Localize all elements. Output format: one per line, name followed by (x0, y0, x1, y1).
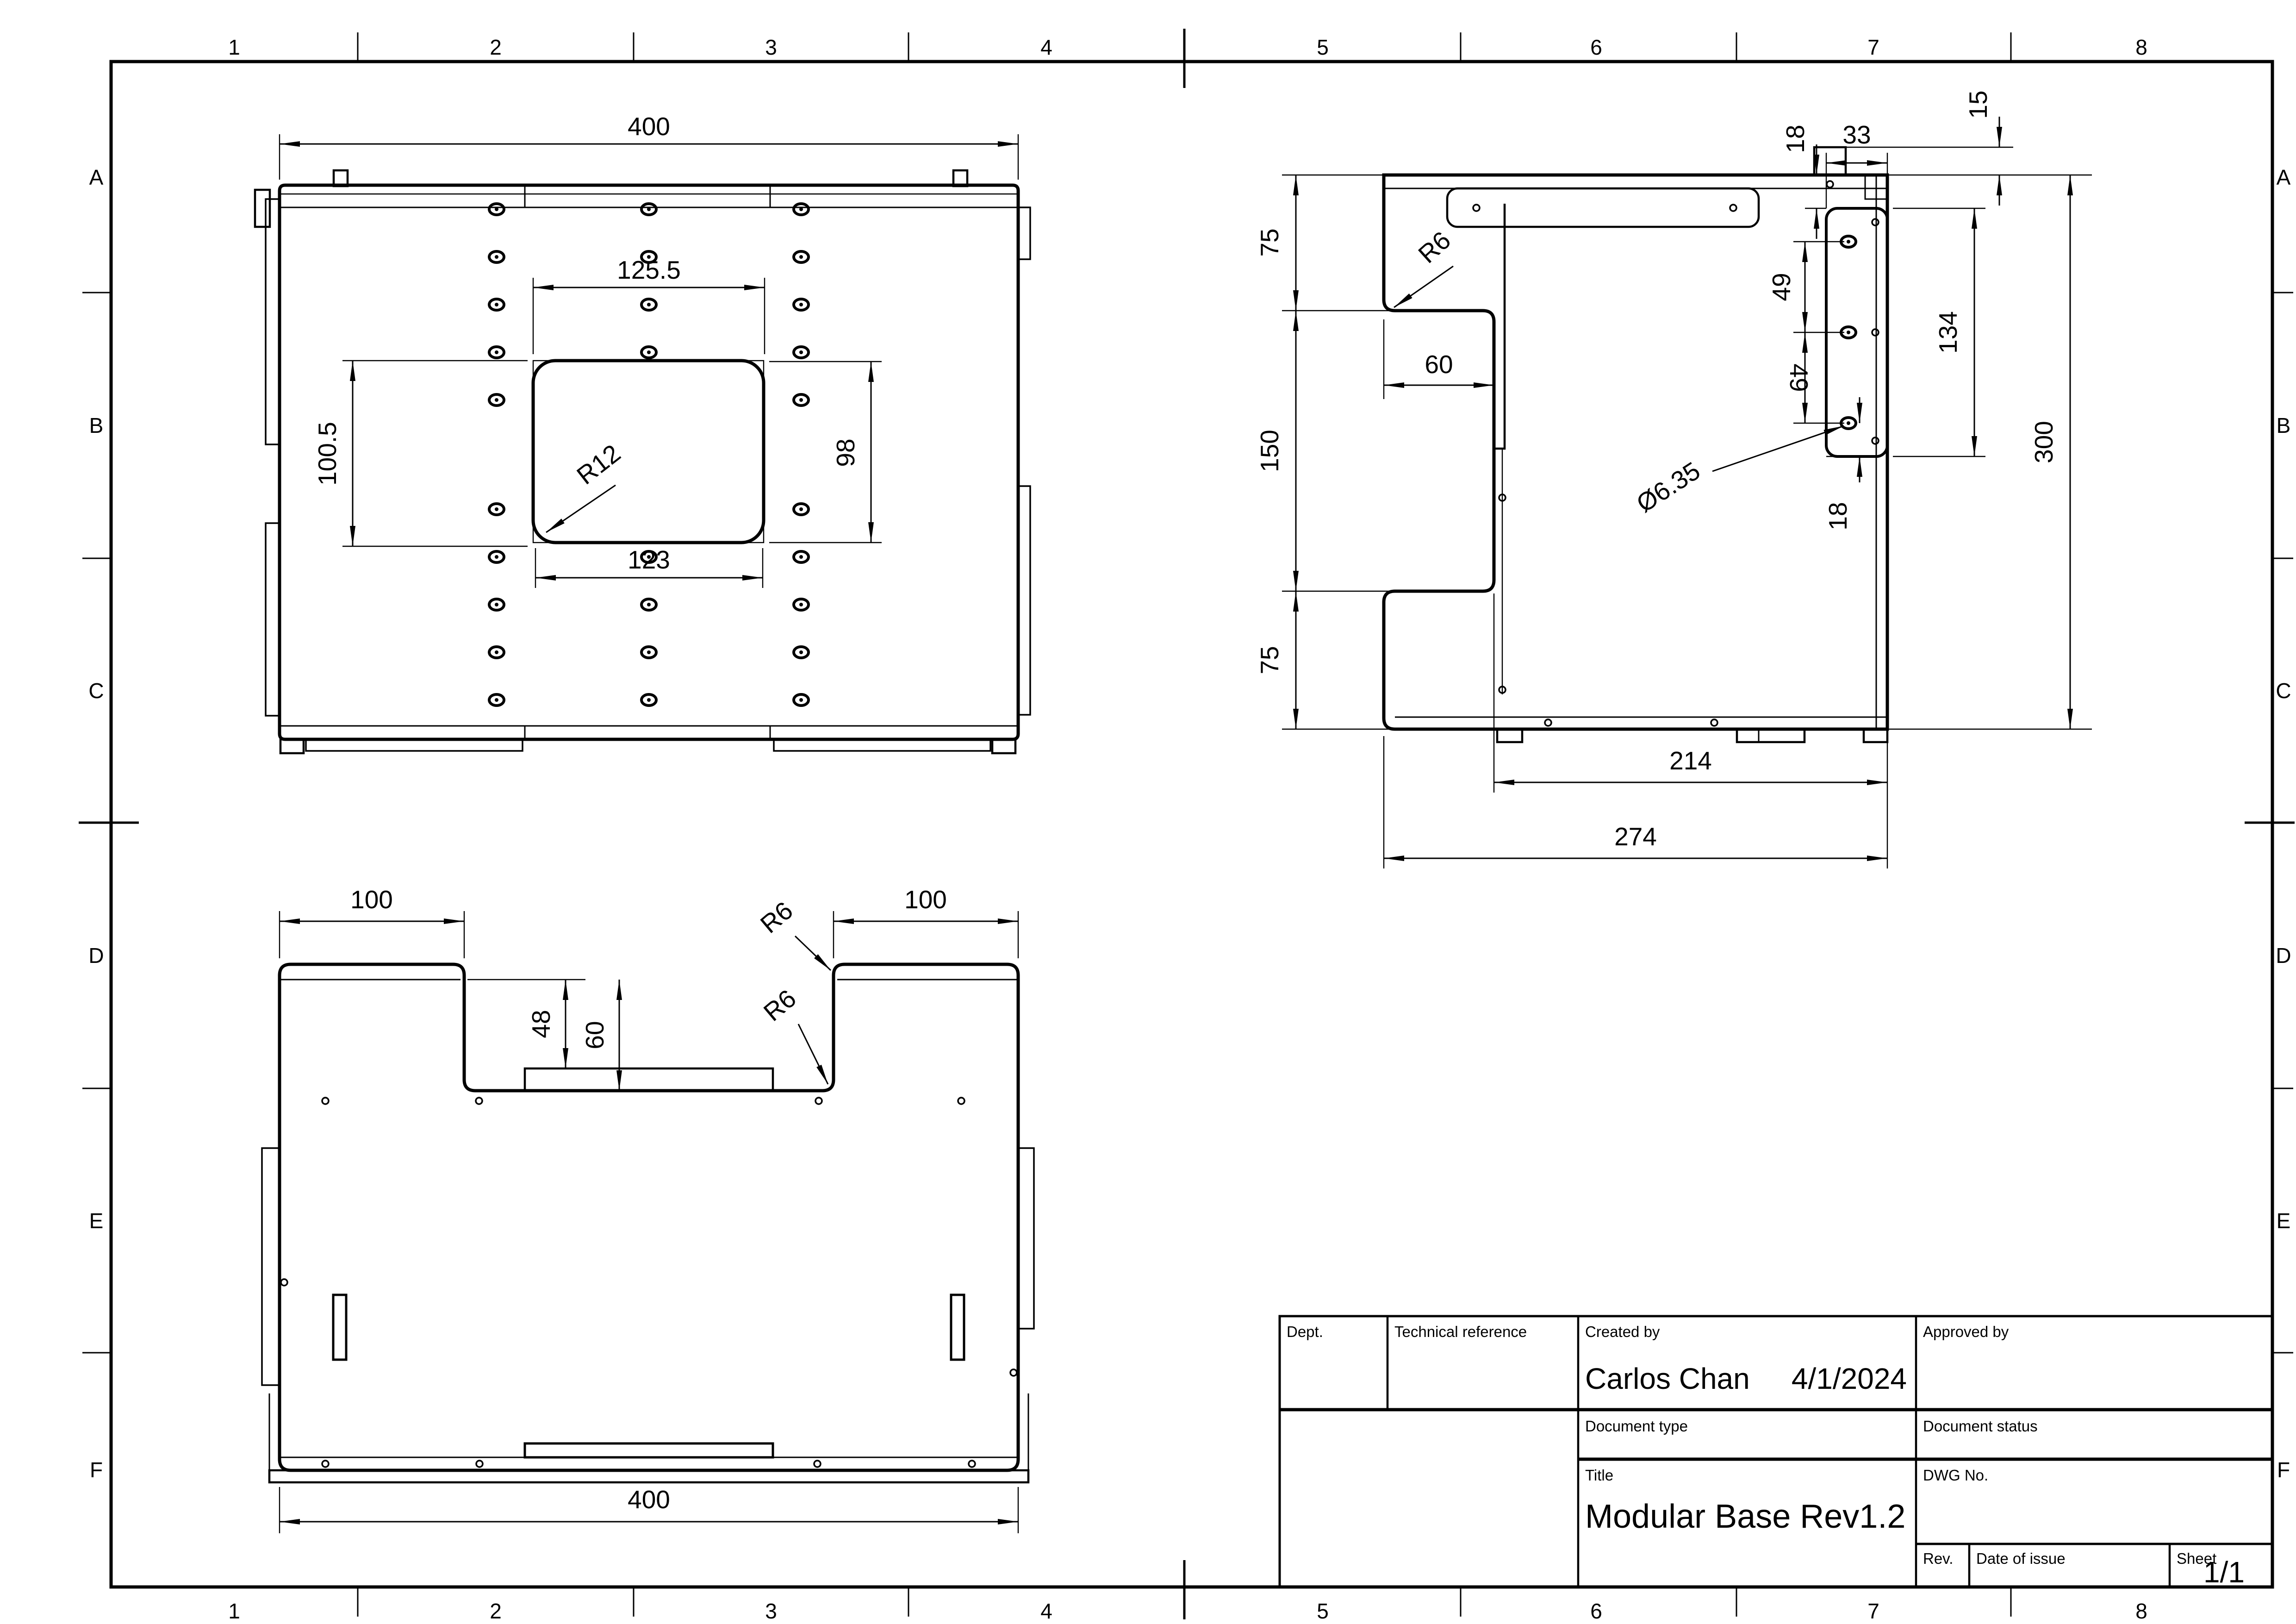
zone-row-label: B (2277, 413, 2291, 437)
zone-row-label: A (89, 165, 104, 189)
dim-side-inner-width: 214 (1669, 746, 1712, 775)
title-block-label-dept: Dept. (1287, 1323, 1323, 1340)
zone-row-label: F (2277, 1458, 2290, 1482)
title-block-label-created-by: Created by (1585, 1323, 1660, 1340)
dim-front-left-shoulder: 100 (350, 885, 393, 914)
zone-row-label: A (2277, 165, 2291, 189)
dim-side-step-width: 60 (1425, 350, 1453, 379)
zone-col-label: 7 (1867, 35, 1879, 59)
zone-row-label: D (2276, 943, 2291, 968)
title-block-label-approved-by: Approved by (1923, 1323, 2009, 1340)
zone-col-label: 6 (1590, 35, 1602, 59)
front-view-dimensions: 100 100 48 60 R6 R6 400 (280, 885, 1018, 1533)
dim-side-tab-height: 15 (1964, 90, 1992, 119)
dim-side-lower: 75 (1255, 646, 1284, 674)
cad-drawing-canvas: 1 2 3 4 5 6 7 8 1 2 3 4 5 6 7 8 A B C D … (0, 0, 2296, 1624)
zone-col-label: 1 (228, 35, 240, 59)
zone-row-label: B (89, 413, 104, 437)
dim-front-fillet-top: R6 (755, 896, 798, 939)
zone-col-label: 4 (1040, 1599, 1052, 1623)
title-block-label-dwg-no: DWG No. (1923, 1467, 1988, 1484)
dim-side-hole-pitch-1: 49 (1767, 273, 1796, 301)
drawing-sheet: 1 2 3 4 5 6 7 8 1 2 3 4 5 6 7 8 A B C D … (0, 0, 2296, 1624)
zone-col-label: 1 (228, 1599, 240, 1623)
dim-side-flange-width: 33 (1842, 120, 1871, 149)
dim-side-middle: 150 (1255, 430, 1284, 472)
zone-col-label: 2 (490, 1599, 502, 1623)
dim-side-hole-dia: Ø6.35 (1631, 456, 1705, 518)
zone-col-label: 4 (1040, 35, 1052, 59)
title-block-created-by-name: Carlos Chan (1585, 1362, 1750, 1395)
zone-col-label: 6 (1590, 1599, 1602, 1623)
dim-side-total-height: 300 (2029, 421, 2058, 463)
zone-col-label: 8 (2135, 1599, 2147, 1623)
dim-side-outer-width: 274 (1614, 822, 1657, 851)
title-block-label-technical-reference: Technical reference (1394, 1323, 1527, 1340)
view-top-plan: 400 125.5 100.5 98 123 R12 (255, 112, 1030, 753)
dim-cutout-right: 98 (831, 438, 860, 467)
title-block-label-title: Title (1585, 1467, 1613, 1484)
dim-cutout-left: 100.5 (313, 422, 342, 486)
side-view-dimensions: 75 150 75 R6 60 Ø6.35 18 33 15 (1255, 90, 2070, 868)
title-block-sheet-number: 1/1 (2203, 1555, 2245, 1589)
zone-col-label: 2 (490, 35, 502, 59)
dim-front-notch-inner: 48 (527, 1010, 555, 1038)
dim-front-width: 400 (628, 1485, 670, 1514)
zone-col-label: 8 (2135, 35, 2147, 59)
zone-col-label: 5 (1317, 35, 1329, 59)
dim-side-flange-height: 134 (1934, 311, 1962, 354)
dim-front-notch-depth: 60 (580, 1021, 609, 1049)
dim-front-fillet-bottom: R6 (758, 984, 802, 1027)
zone-col-label: 7 (1867, 1599, 1879, 1623)
dim-cutout-top: 125.5 (617, 256, 681, 284)
zone-col-label: 3 (765, 35, 777, 59)
zone-row-label: E (89, 1209, 104, 1233)
dim-side-hole-pitch-2: 49 (1785, 363, 1813, 392)
dim-side-fillet: R6 (1412, 225, 1456, 269)
title-block-title-value: Modular Base Rev1.2 (1585, 1498, 1905, 1535)
title-block: Dept. Technical reference Created by App… (1280, 1316, 2272, 1589)
zone-col-label: 3 (765, 1599, 777, 1623)
top-view-dimensions: 400 125.5 100.5 98 123 R12 (280, 112, 1018, 588)
sheet-frame (79, 29, 2295, 1619)
dim-top-width: 400 (628, 112, 670, 141)
zone-col-label: 5 (1317, 1599, 1329, 1623)
title-block-label-rev: Rev. (1923, 1550, 1953, 1567)
view-side: 75 150 75 R6 60 Ø6.35 18 33 15 (1255, 90, 2092, 868)
title-block-label-document-status: Document status (1923, 1418, 2038, 1435)
zone-row-label: C (2276, 679, 2291, 703)
zone-row-label: E (2277, 1209, 2291, 1233)
dim-side-upper: 75 (1255, 228, 1284, 256)
zone-row-label: D (88, 943, 104, 968)
view-front: 100 100 48 60 R6 R6 400 (262, 885, 1034, 1533)
title-block-created-date: 4/1/2024 (1792, 1362, 1907, 1395)
zone-row-label: C (88, 679, 104, 703)
title-block-label-document-type: Document type (1585, 1418, 1688, 1435)
dim-side-hole-bottom: 18 (1823, 502, 1852, 530)
zone-labels: 1 2 3 4 5 6 7 8 1 2 3 4 5 6 7 8 A B C D … (88, 35, 2291, 1623)
dim-side-flange-top: 18 (1781, 125, 1810, 153)
title-block-label-date-of-issue: Date of issue (1976, 1550, 2066, 1567)
zone-row-label: F (90, 1458, 103, 1482)
dim-cutout-bottom: 123 (628, 545, 670, 574)
dim-front-right-shoulder: 100 (904, 885, 947, 914)
dim-corner-radius: R12 (571, 439, 626, 490)
